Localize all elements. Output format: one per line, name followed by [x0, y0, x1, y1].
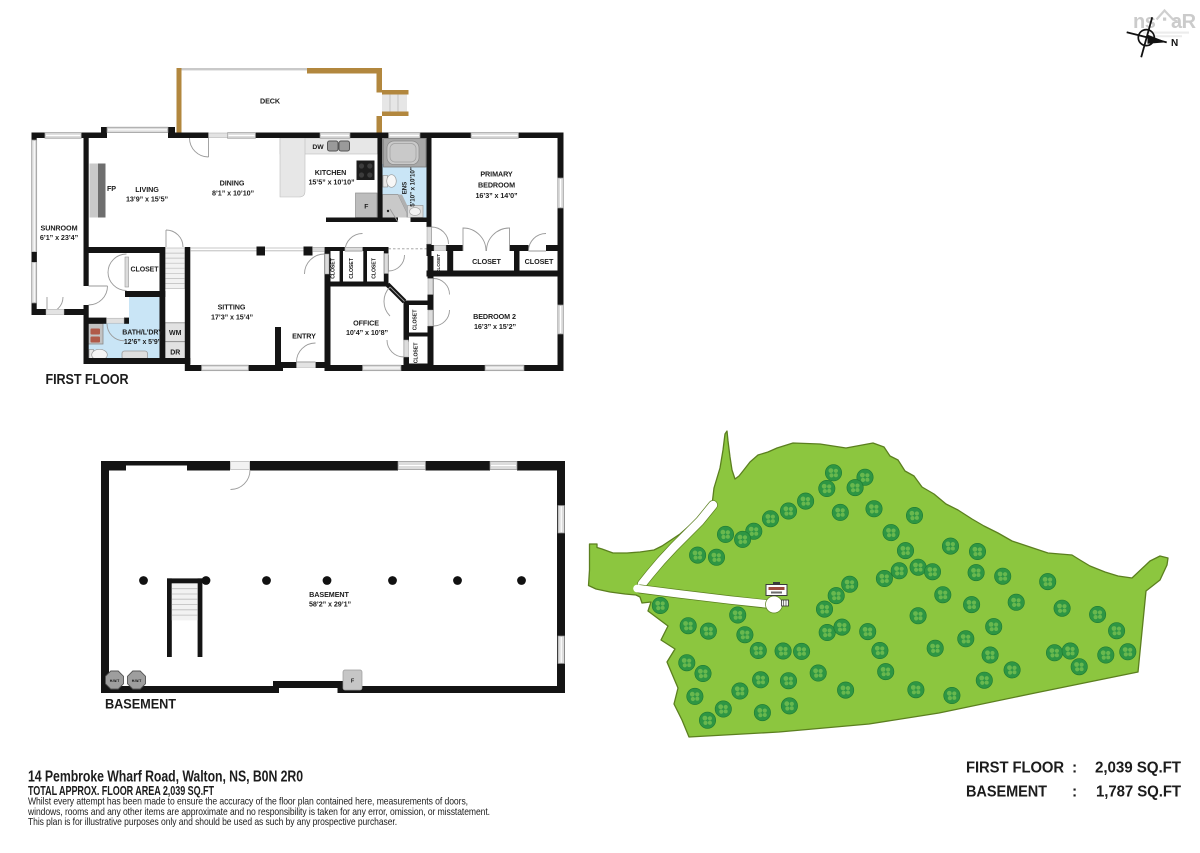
svg-text:BASEMENT: BASEMENT [966, 783, 1048, 800]
svg-text:DW: DW [312, 144, 324, 151]
svg-text:CLOSET: CLOSET [372, 257, 378, 278]
svg-text:CLOSET: CLOSET [525, 257, 554, 266]
svg-text:FP: FP [107, 184, 116, 193]
svg-text:KITCHEN: KITCHEN [315, 168, 346, 177]
svg-text:15’5” x 10’10”: 15’5” x 10’10” [308, 178, 355, 187]
svg-text:LIVING: LIVING [135, 185, 159, 194]
svg-text:H.W.T: H.W.T [110, 679, 120, 683]
svg-text:N: N [1171, 38, 1178, 49]
svg-text:ENTRY: ENTRY [292, 332, 316, 341]
svg-text:CLOSET: CLOSET [436, 254, 442, 273]
svg-text:6’1” x 23’4”: 6’1” x 23’4” [40, 233, 79, 242]
svg-text:ENS: ENS [402, 182, 409, 194]
svg-text:16’3” x 15’2”: 16’3” x 15’2” [474, 322, 517, 331]
svg-text:12’6” x 5’9”: 12’6” x 5’9” [124, 339, 161, 346]
svg-text:2,039 SQ.FT: 2,039 SQ.FT [1095, 760, 1182, 777]
svg-text:OFFICE: OFFICE [353, 319, 379, 328]
svg-text:5’10” x 10’10”: 5’10” x 10’10” [410, 167, 417, 206]
svg-text:PRIMARY: PRIMARY [480, 170, 513, 179]
svg-text:17’3” x 15’4”: 17’3” x 15’4” [211, 313, 254, 322]
svg-text:16’3” x 14’0”: 16’3” x 14’0” [475, 191, 518, 200]
svg-text:10’4” x 10’8”: 10’4” x 10’8” [346, 328, 389, 337]
svg-text::: : [1072, 783, 1077, 800]
svg-text:WM: WM [169, 330, 182, 337]
svg-text:BEDROOM: BEDROOM [478, 181, 515, 190]
svg-text:F: F [364, 204, 368, 211]
svg-text:CLOSET: CLOSET [330, 257, 336, 278]
svg-text:8’1” x 10’10”: 8’1” x 10’10” [212, 189, 255, 198]
svg-text:1,787 SQ.FT: 1,787 SQ.FT [1096, 783, 1182, 800]
svg-text:FIRST FLOOR: FIRST FLOOR [966, 760, 1064, 777]
svg-text:BEDROOM 2: BEDROOM 2 [473, 312, 516, 321]
svg-text:aR: aR [1171, 11, 1197, 33]
svg-text:SUNROOM: SUNROOM [41, 224, 78, 233]
svg-text::: : [1072, 760, 1077, 777]
svg-text:CLOSET: CLOSET [414, 342, 420, 363]
svg-text:DECK: DECK [260, 97, 281, 106]
svg-text:BASEMENT: BASEMENT [105, 696, 176, 712]
svg-text:H.W.T: H.W.T [132, 679, 142, 683]
svg-text:CLOSET: CLOSET [131, 267, 160, 274]
svg-text:58’2” x 29’1”: 58’2” x 29’1” [309, 600, 352, 609]
svg-text:CLOSET: CLOSET [413, 309, 419, 330]
svg-text:14 Pembroke Wharf Road, Walton: 14 Pembroke Wharf Road, Walton, NS, B0N … [28, 769, 303, 786]
svg-text:This plan is for illustrative: This plan is for illustrative purposes o… [28, 817, 397, 828]
svg-text:BATH/L’DRY: BATH/L’DRY [122, 330, 163, 337]
svg-text:CLOSET: CLOSET [349, 257, 355, 278]
svg-text:13’9” x 15’5”: 13’9” x 15’5” [126, 195, 169, 204]
svg-text:DINING: DINING [220, 179, 245, 188]
svg-text:DR: DR [170, 350, 180, 357]
svg-text:SITTING: SITTING [218, 303, 246, 312]
svg-text:FIRST FLOOR: FIRST FLOOR [46, 371, 129, 388]
svg-text:CLOSET: CLOSET [472, 257, 501, 266]
svg-text:BASEMENT: BASEMENT [309, 590, 349, 599]
